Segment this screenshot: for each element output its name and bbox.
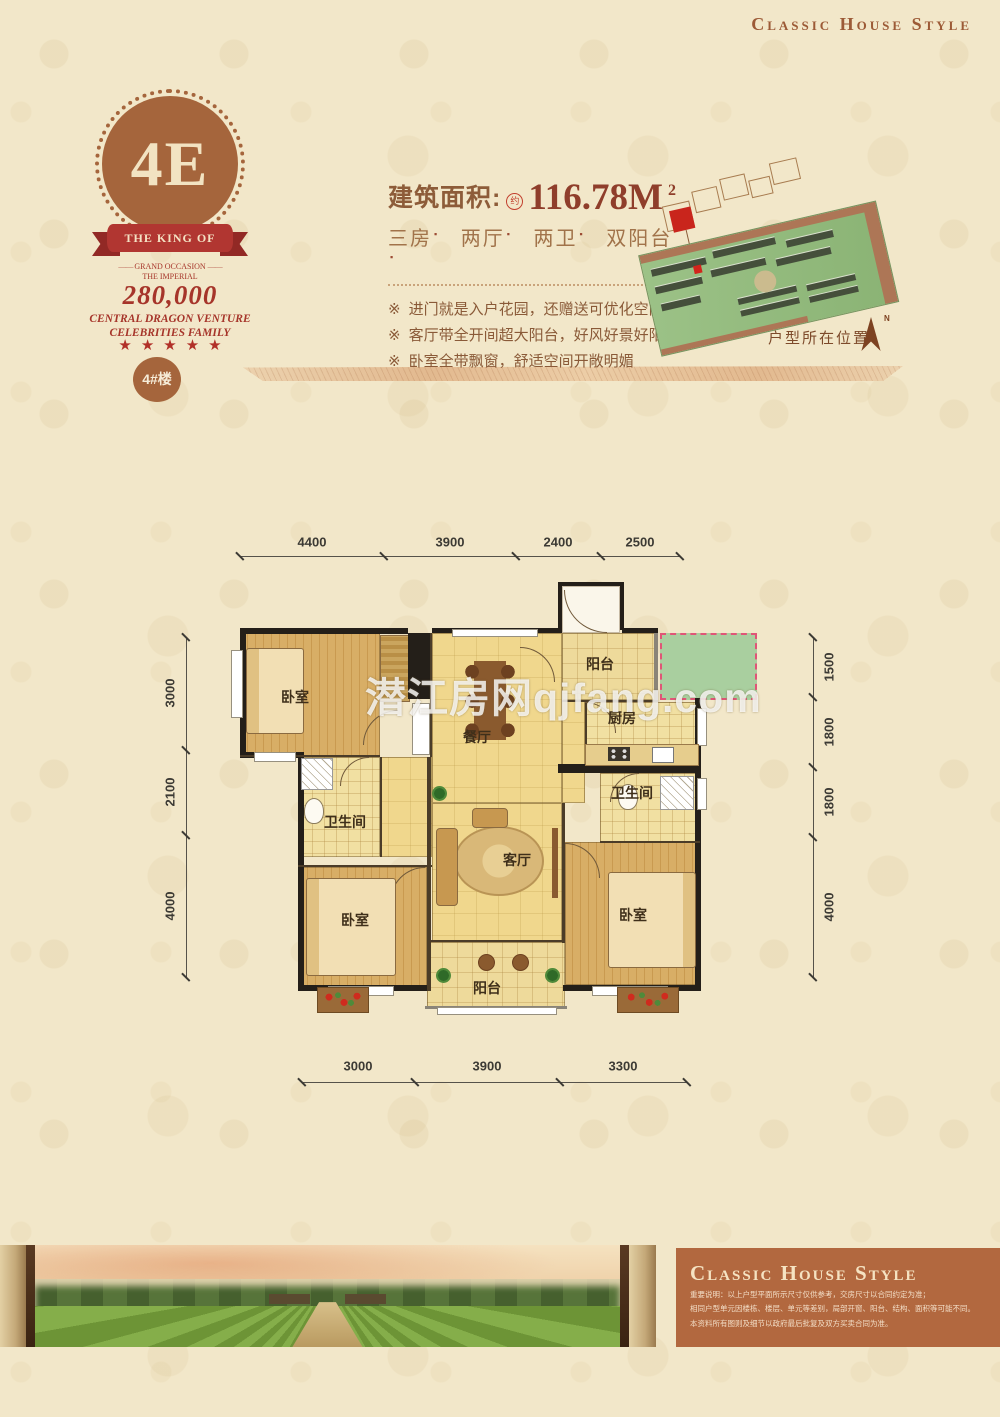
shower bbox=[660, 776, 694, 810]
stool bbox=[478, 954, 495, 971]
ornament-left: —— bbox=[118, 262, 132, 271]
dimension-value: 3300 bbox=[609, 1059, 638, 1074]
footer-title: Classic House Style bbox=[690, 1261, 986, 1286]
disclaimer-line: 相同户型单元因楼栋、楼层、单元等差别，局部开窗、阳台、结构、面积等可能不同。 bbox=[690, 1303, 986, 1314]
occasion-text-1: GRAND OCCASION bbox=[134, 262, 205, 271]
stone-pillar bbox=[0, 1245, 26, 1347]
feature-bullet-icon: ※ bbox=[388, 353, 401, 370]
garden-photo bbox=[35, 1245, 620, 1347]
dimension-value: 4000 bbox=[163, 892, 178, 921]
stone-pillar bbox=[629, 1245, 656, 1347]
flower-box bbox=[617, 987, 679, 1013]
building-row bbox=[655, 277, 703, 295]
room-label-balcony-bottom: 阳台 bbox=[473, 978, 501, 998]
road bbox=[862, 202, 898, 304]
wall bbox=[427, 940, 565, 942]
wall bbox=[380, 757, 382, 857]
window bbox=[697, 778, 707, 810]
wall bbox=[298, 865, 432, 867]
brochure-page: Classic House Style 4E THE KING OF CITY … bbox=[0, 0, 1000, 1417]
dimension-value: 4400 bbox=[298, 535, 327, 550]
ribbon-banner: THE KING OF CITY bbox=[92, 224, 248, 258]
site-plan bbox=[640, 162, 900, 352]
building-row bbox=[786, 230, 834, 248]
dimension-value: 2100 bbox=[163, 778, 178, 807]
building-outline bbox=[769, 157, 801, 185]
room-label-living: 客厅 bbox=[503, 850, 531, 870]
wall bbox=[600, 841, 700, 843]
window bbox=[437, 1007, 557, 1015]
stool bbox=[512, 954, 529, 971]
layout-rooms: 三房 bbox=[388, 228, 439, 250]
unit-location-dot bbox=[693, 265, 703, 275]
dimension-value: 3000 bbox=[344, 1059, 373, 1074]
compass-north-label: N bbox=[884, 314, 890, 323]
pillar-frame bbox=[26, 1245, 35, 1347]
dimension-line-right bbox=[813, 637, 814, 977]
page-title: Classic House Style bbox=[751, 14, 972, 35]
dimension-value: 1800 bbox=[822, 718, 837, 747]
window bbox=[254, 752, 296, 762]
building-row bbox=[661, 296, 702, 312]
bay-window bbox=[231, 650, 243, 718]
tagline-line-1: CENTRAL DRAGON VENTURE bbox=[89, 313, 250, 325]
dimension-value: 3000 bbox=[163, 679, 178, 708]
pergola bbox=[269, 1294, 310, 1304]
building-row bbox=[776, 247, 832, 266]
ornament-right: —— bbox=[208, 262, 222, 271]
dimension-value: 1500 bbox=[822, 653, 837, 682]
site-plan-caption: 户型所在位置 bbox=[768, 327, 870, 348]
floor-plan: 卧室 餐厅 阳台 厨房 卫生间 客厅 卫生间 卧室 卧室 阳台 bbox=[240, 588, 785, 1018]
stove bbox=[608, 747, 630, 761]
pergola bbox=[345, 1294, 386, 1304]
building-outline bbox=[748, 176, 773, 198]
watermark: 潜江房网qjfang.com bbox=[365, 664, 762, 724]
layout-baths: 两卫 bbox=[534, 228, 585, 250]
highlighted-building bbox=[669, 206, 695, 232]
area-label: 建筑面积: bbox=[388, 178, 501, 214]
feature-item: ※卧室全带飘窗，舒适空间开敞明媚 bbox=[388, 349, 688, 375]
plant bbox=[545, 968, 560, 983]
footer-disclaimer-box: Classic House Style 重要说明：以上户型平面所示尺寸仅供参考，… bbox=[676, 1248, 1000, 1347]
building-outline bbox=[691, 186, 721, 213]
dimension-line-top bbox=[240, 556, 680, 557]
tv-cabinet bbox=[552, 828, 558, 898]
feature-text: 卧室全带飘窗，舒适空间开敞明媚 bbox=[409, 353, 634, 370]
feature-bullet-icon: ※ bbox=[388, 327, 401, 344]
room-label-bedroom-bl: 卧室 bbox=[341, 910, 369, 930]
disclaimer-line: 本资料所有图则及细节以政府最后批复及双方买卖合同为准。 bbox=[690, 1318, 986, 1329]
approx-stamp-icon: 约 bbox=[506, 193, 523, 210]
dimension-line-left bbox=[186, 637, 187, 977]
wall bbox=[427, 757, 431, 991]
wall bbox=[622, 628, 658, 633]
dotted-divider bbox=[388, 284, 663, 286]
dimension-value: 1800 bbox=[822, 788, 837, 817]
layout-halls: 两厅 bbox=[461, 228, 512, 250]
wall bbox=[558, 582, 562, 630]
building-outline bbox=[719, 173, 749, 200]
kitchen-counter bbox=[585, 744, 699, 766]
toilet bbox=[304, 798, 324, 824]
plant bbox=[436, 968, 451, 983]
window bbox=[452, 629, 538, 637]
ribbon-text: THE KING OF CITY bbox=[107, 224, 233, 252]
shower bbox=[301, 758, 333, 790]
unit-code: 4E bbox=[131, 127, 210, 201]
star-rating: ★★★★★ bbox=[60, 336, 280, 354]
feature-text: 进门就是入户花园，还赠送可优化空间 bbox=[409, 301, 664, 318]
room-label-bathroom-left: 卫生间 bbox=[324, 812, 366, 832]
plant bbox=[432, 786, 447, 801]
dimension-value: 3900 bbox=[436, 535, 465, 550]
dimension-value: 2500 bbox=[626, 535, 655, 550]
room-label-bathroom-right: 卫生间 bbox=[611, 783, 653, 803]
disclaimer-line: 重要说明：以上户型平面所示尺寸仅供参考，交房尺寸以合同约定为准； bbox=[690, 1289, 986, 1300]
dimension-value: 3900 bbox=[473, 1059, 502, 1074]
flower-box bbox=[317, 987, 369, 1013]
room-label-bedroom-br: 卧室 bbox=[619, 905, 647, 925]
sofa bbox=[436, 828, 458, 906]
wall bbox=[620, 582, 624, 630]
wall bbox=[558, 582, 624, 586]
room-label-bedroom: 卧室 bbox=[281, 687, 309, 707]
feature-bullet-icon: ※ bbox=[388, 301, 401, 318]
building-number-badge: 4#楼 bbox=[133, 357, 181, 402]
wall bbox=[240, 628, 408, 634]
dimension-value: 2400 bbox=[544, 535, 573, 550]
room-label-dining: 餐厅 bbox=[463, 727, 491, 747]
price-number: 280,000 bbox=[60, 280, 280, 311]
feature-text: 客厅带全开间超大阳台，好风好景好阳光 bbox=[409, 327, 679, 344]
sink bbox=[652, 747, 674, 763]
unit-badge: 4E bbox=[102, 96, 238, 232]
footer-photo bbox=[0, 1245, 656, 1347]
dimension-line-bottom bbox=[302, 1082, 687, 1083]
pillar-frame bbox=[620, 1245, 629, 1347]
armchair bbox=[472, 808, 508, 828]
dimension-value: 4000 bbox=[822, 893, 837, 922]
